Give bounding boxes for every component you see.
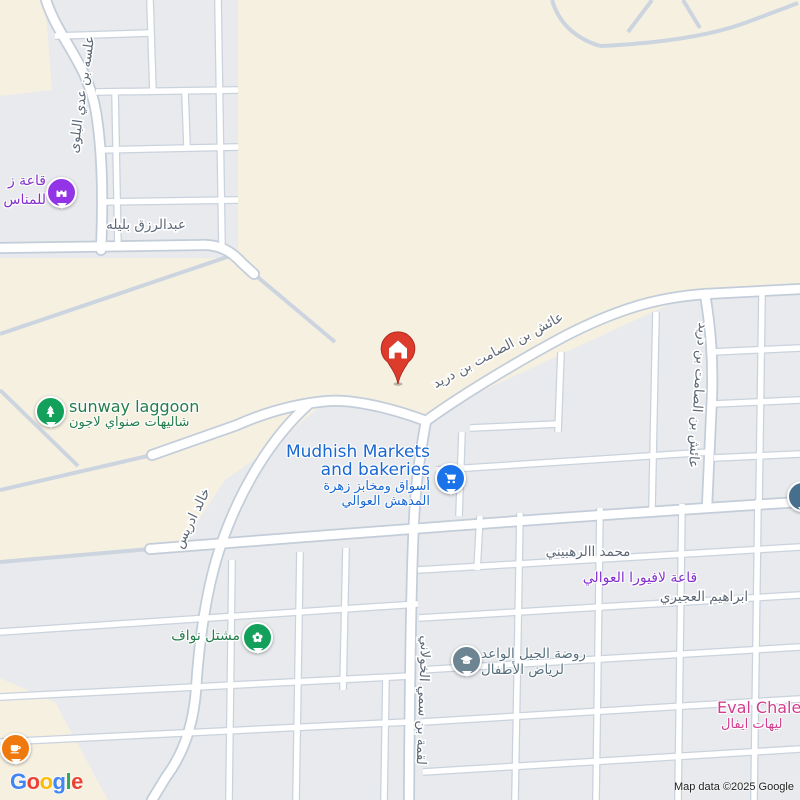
logo-letter: G xyxy=(10,769,27,794)
mudhish-subtitle-line2: المدهش العوالي xyxy=(228,494,430,509)
poi-pin-nawaf-nursery[interactable] xyxy=(242,622,273,653)
poi-label-sunway-lagoon[interactable]: sunway laggoon شاليهات صنواي لاجون xyxy=(69,398,199,431)
map-attribution: Map data ©2025 Google xyxy=(674,781,794,793)
poi-label-kindergarten[interactable]: روضة الجيل الواعد لرياض الأطفال xyxy=(481,646,586,678)
tree-icon xyxy=(43,404,58,419)
banquet-hall-icon xyxy=(54,185,69,200)
map-canvas[interactable]: علسه بن عدي البلوى عبدالرزق بليله عائش ب… xyxy=(0,0,800,800)
kindergarten-line2: لرياض الأطفال xyxy=(481,662,586,678)
sunway-title: sunway laggoon xyxy=(69,398,199,415)
wedding-hall-line1: قاعة ز xyxy=(0,172,46,191)
poi-label-wedding-hall[interactable]: قاعة ز للمناس xyxy=(0,172,46,210)
poi-label-nawaf-nursery[interactable]: مشتل نواف xyxy=(136,628,240,644)
poi-pin-sunway-lagoon[interactable] xyxy=(35,396,66,427)
poi-pin-wedding-hall[interactable] xyxy=(46,177,77,208)
poi-pin-kindergarten[interactable] xyxy=(451,645,482,676)
poi-label-lafiora-hall[interactable]: قاعة لافيورا العوالي xyxy=(557,570,723,586)
mudhish-subtitle-line1: أسواق ومخابز زهرة xyxy=(228,479,430,494)
logo-letter: o xyxy=(27,769,40,794)
poi-pin-cafe[interactable] xyxy=(0,733,31,764)
mudhish-title-line1: Mudhish Markets xyxy=(228,443,430,461)
poi-label-mudhish-markets[interactable]: Mudhish Markets and bakeries أسواق ومخاب… xyxy=(228,443,430,509)
google-logo[interactable]: Google xyxy=(10,769,83,795)
street-label-ibrahim-alajiri: ابراهيم العجيري xyxy=(660,589,748,605)
logo-letter: o xyxy=(40,769,53,794)
sunway-subtitle: شاليهات صنواي لاجون xyxy=(69,415,199,431)
lafiora-title: قاعة لافيورا العوالي xyxy=(557,570,723,586)
street-label-mohammed-alrahbini: محمد االرهبيني xyxy=(546,544,631,560)
coffee-cup-icon xyxy=(8,741,23,756)
nursery-title: مشتل نواف xyxy=(136,628,240,644)
shopping-cart-icon xyxy=(443,471,458,486)
destination-pin[interactable] xyxy=(378,330,418,386)
poi-pin-mudhish-markets[interactable] xyxy=(435,463,466,494)
eval-title: Eval Chale xyxy=(717,699,800,717)
logo-letter: e xyxy=(71,769,83,794)
street-label-abdulrazzaq: عبدالرزق بليله xyxy=(106,217,186,233)
kindergarten-line1: روضة الجيل الواعد xyxy=(481,646,586,662)
mudhish-title-line2: and bakeries xyxy=(228,461,430,479)
poi-label-eval-chalet[interactable]: Eval Chale ليهات ايفال xyxy=(717,699,800,732)
graduation-cap-icon xyxy=(459,653,474,668)
logo-letter: g xyxy=(53,769,66,794)
wedding-hall-line2: للمناس xyxy=(0,191,46,210)
flower-icon xyxy=(250,630,265,645)
eval-subtitle: ليهات ايفال xyxy=(721,717,800,732)
